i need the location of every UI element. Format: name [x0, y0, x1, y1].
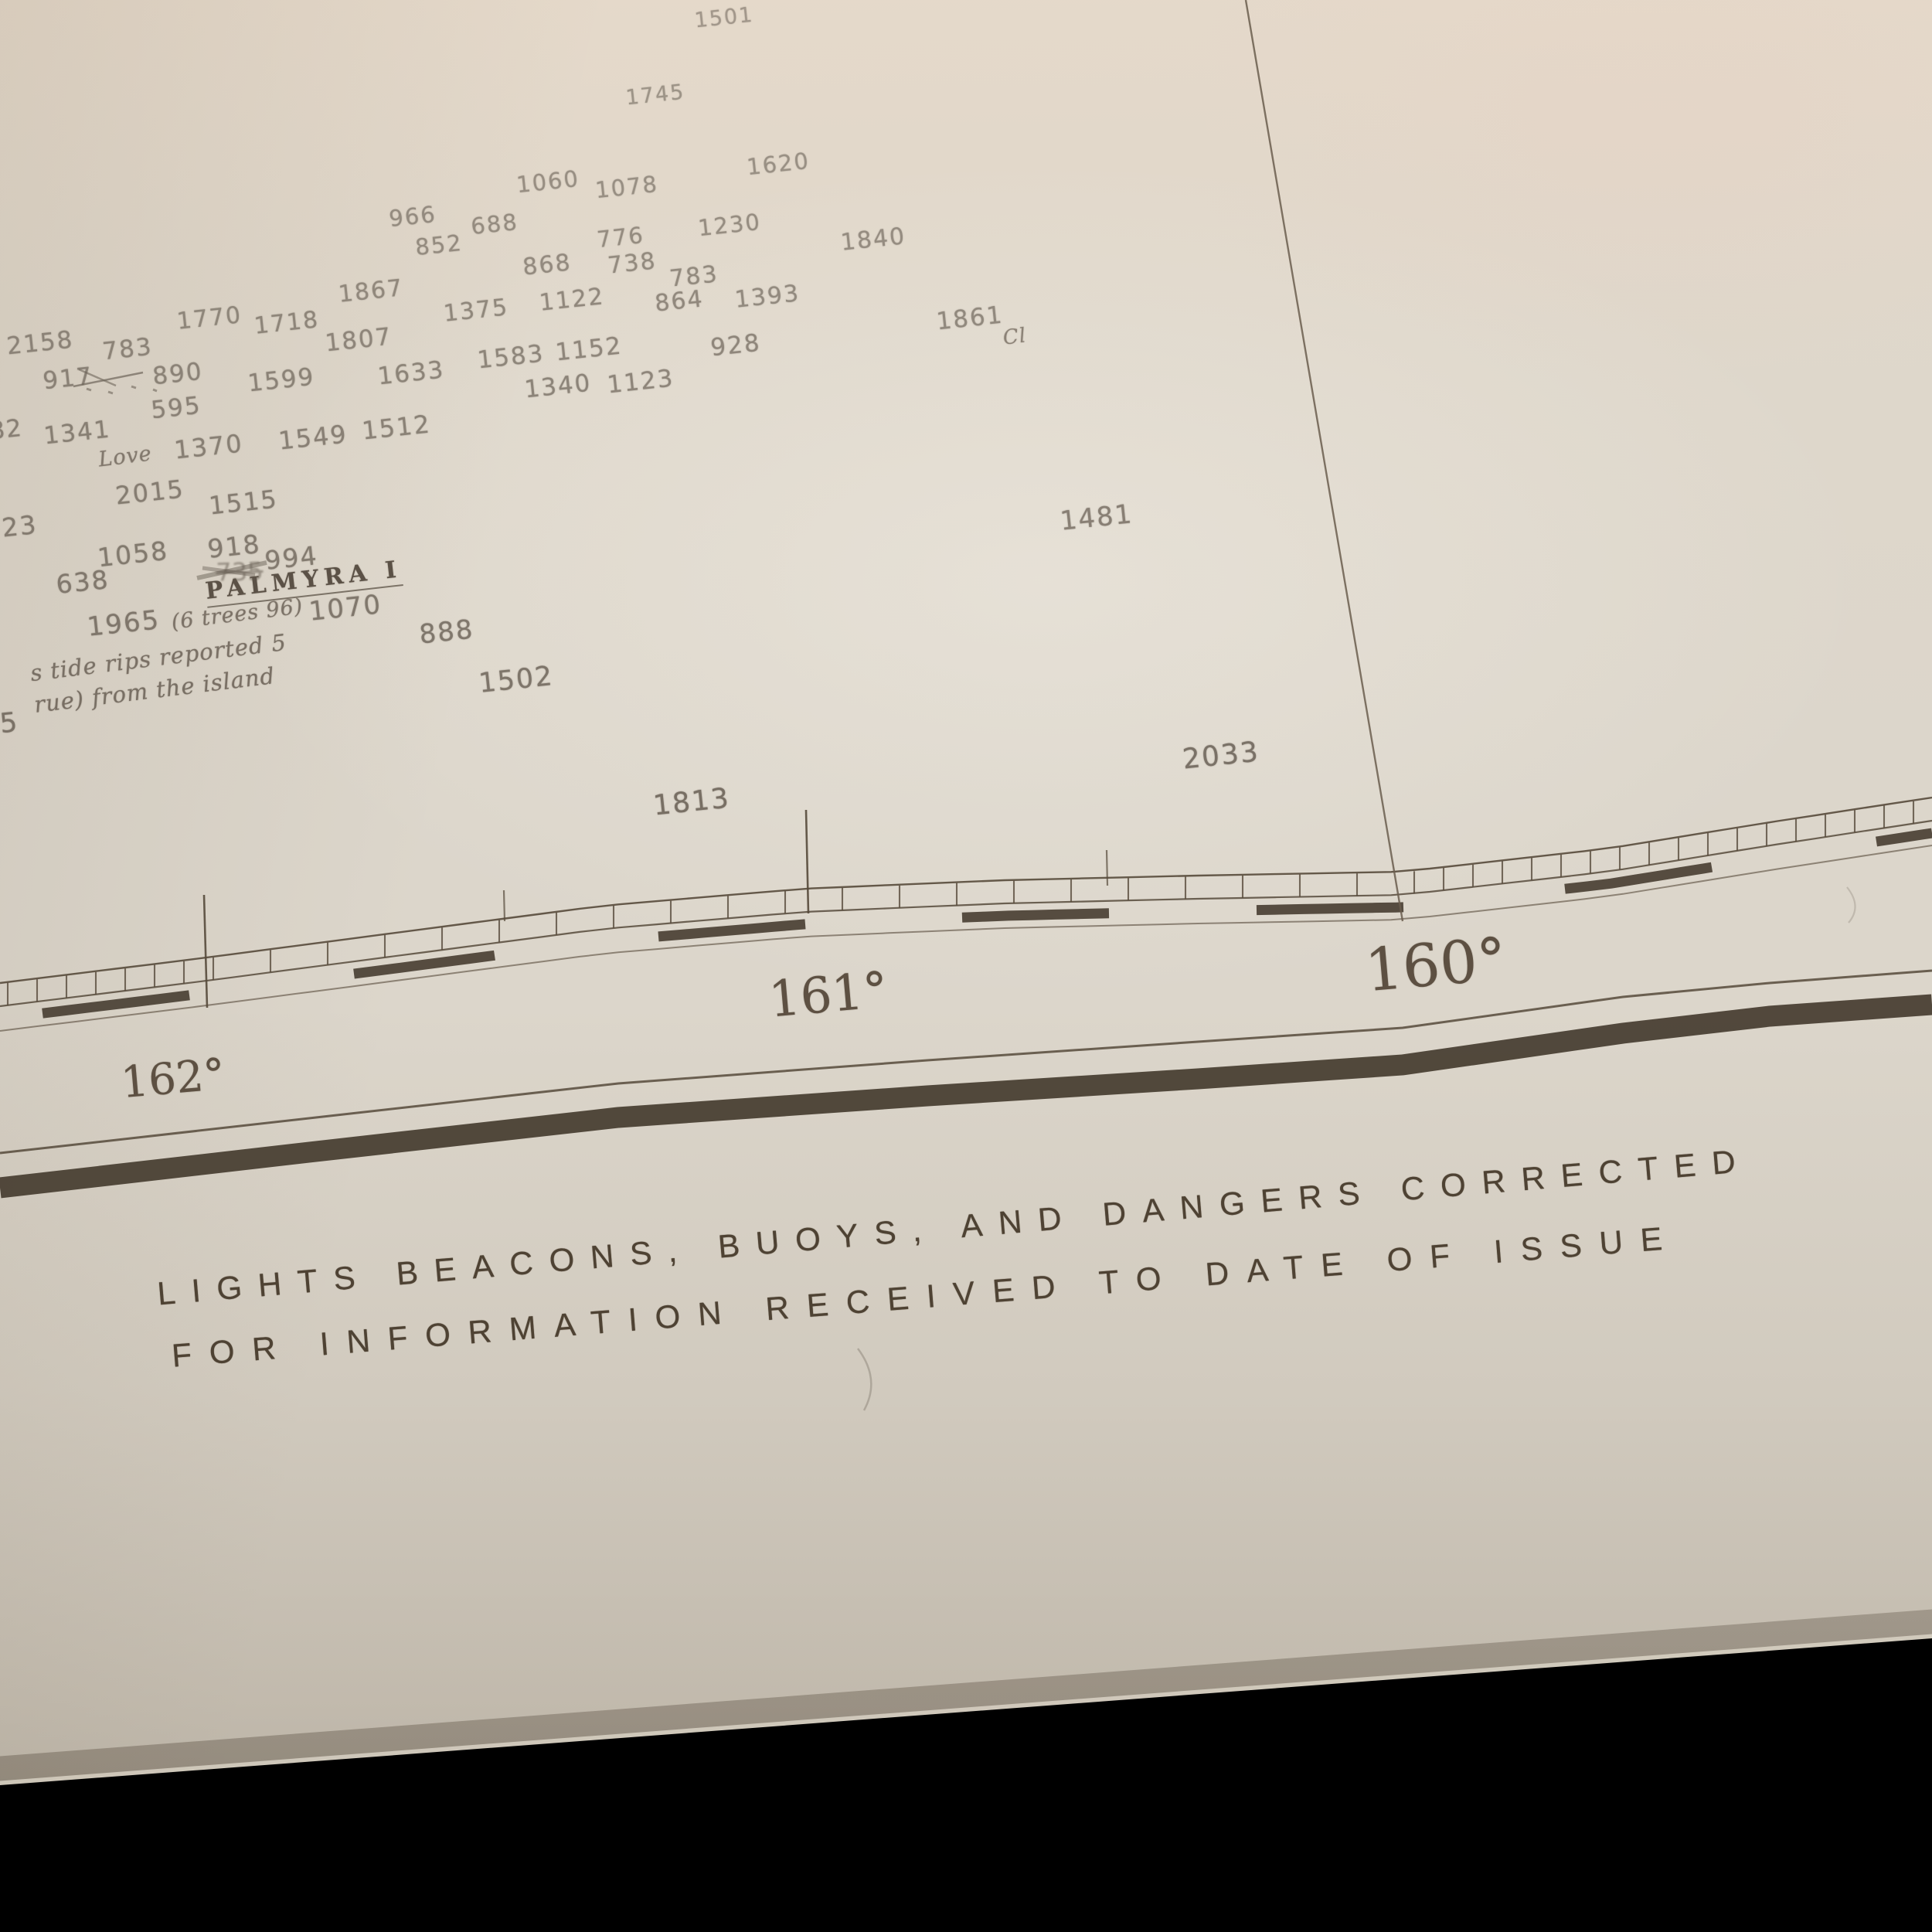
sounding-depth: 1718 [253, 306, 321, 340]
sounding-depth: 1813 [651, 782, 731, 821]
sounding-depth: 1393 [733, 280, 801, 314]
sounding-depth: 1807 [324, 323, 393, 358]
sounding-depth: 1370 [173, 428, 245, 464]
sounding-depth: 776 [596, 222, 646, 253]
sounding-depth: 1745 [624, 80, 686, 111]
sounding-depth: 868 [522, 249, 573, 281]
sounding-depth: 638 [55, 564, 111, 600]
sounding-depth: 783 [101, 333, 155, 366]
sounding-depth: 1481 [1059, 498, 1134, 537]
sounding-depth: 890 [151, 358, 205, 391]
sounding-depth: 1501 [693, 3, 755, 33]
sounding-depth: 1549 [277, 419, 349, 455]
sounding-depth: 1341 [43, 416, 112, 451]
sounding-depth: 1840 [839, 223, 907, 257]
longitude-degree-label: 161° [767, 961, 890, 1029]
sounding-depth: 1375 [442, 294, 510, 328]
sounding-depth: 688 [470, 209, 520, 240]
sounding-depth: 1620 [746, 148, 811, 180]
sounding-depth: 1583 [476, 340, 546, 375]
sounding-depth: 1599 [247, 363, 316, 398]
sounding-depth: 928 [709, 329, 763, 362]
sounding-depth: 966 [388, 201, 438, 232]
sounding-depth: 2158 [5, 326, 75, 361]
sounding-depth: 1770 [175, 301, 243, 335]
sounding-depth: 852 [414, 230, 464, 260]
sounding-depth: 1633 [376, 356, 446, 391]
chart-note: Cl [1002, 324, 1028, 349]
sounding-depth: 1965 [86, 604, 162, 643]
sounding-depth: 1078 [594, 171, 660, 203]
sounding-depth: 1512 [361, 409, 433, 445]
sounding-depth: 1867 [337, 274, 405, 308]
sounding-depth: 1861 [935, 301, 1005, 336]
sounding-depth: 1502 [478, 661, 556, 699]
sounding-depth: 82 [0, 414, 24, 445]
sounding-depth: 738 [607, 247, 658, 279]
sounding-depth: 2015 [114, 474, 186, 510]
sounding-depth: 888 [418, 614, 476, 650]
sounding-depth: 864 [654, 285, 706, 317]
sounding-depth: 1122 [538, 283, 606, 317]
sounding-depth: 1152 [554, 332, 624, 367]
sounding-depth: 923 [0, 509, 39, 545]
sounding-depth: 1340 [523, 369, 593, 404]
chart-note: Love [97, 441, 154, 471]
sounding-depth: 595 [150, 392, 203, 425]
sounding-depth: 1060 [515, 165, 581, 198]
sounding-depth: 5 [0, 707, 20, 740]
sounding-depth: 1515 [208, 484, 280, 520]
sounding-depth: 2033 [1181, 736, 1260, 775]
overprinted-sounding: 735 [216, 556, 264, 587]
sounding-depth: 1230 [697, 209, 763, 241]
chart-photo: LIGHTS BEACONS, BUOYS, AND DANGERS CORRE… [0, 0, 1932, 1932]
longitude-degree-label: 160° [1362, 924, 1509, 1005]
sounding-depth: 1123 [606, 365, 675, 400]
longitude-degree-label: 162° [119, 1049, 227, 1109]
sounding-depth: 917 [42, 362, 95, 396]
